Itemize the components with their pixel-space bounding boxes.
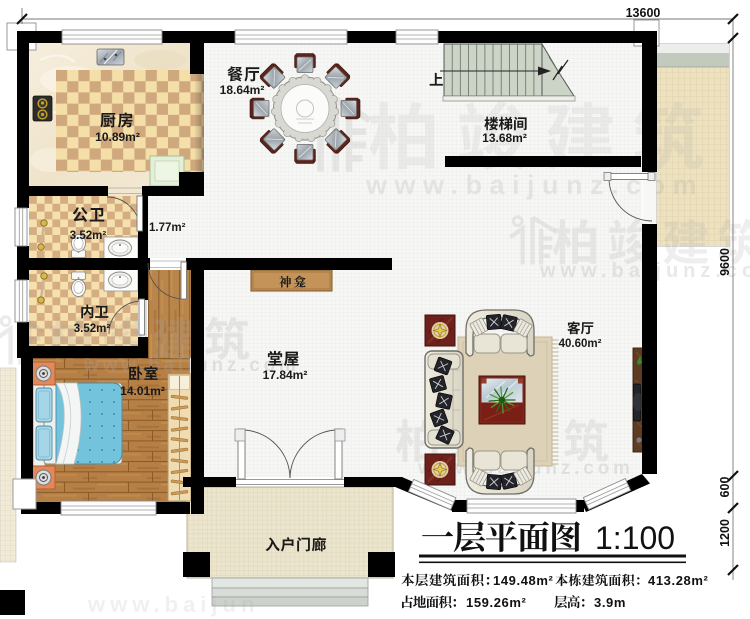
svg-text:600: 600 xyxy=(718,477,732,498)
svg-text:3.52m²: 3.52m² xyxy=(70,230,107,242)
svg-text:1:100: 1:100 xyxy=(595,520,675,556)
svg-text:9600: 9600 xyxy=(718,248,732,276)
svg-text:17.84m²: 17.84m² xyxy=(263,368,308,382)
svg-text:413.28m²: 413.28m² xyxy=(648,573,709,588)
svg-text:3.52m²: 3.52m² xyxy=(74,323,111,335)
svg-text:40.60m²: 40.60m² xyxy=(559,338,602,350)
svg-text:18.64m²: 18.64m² xyxy=(220,83,265,97)
svg-text:159.26m²: 159.26m² xyxy=(466,595,527,610)
svg-text:10.89m²: 10.89m² xyxy=(95,130,140,144)
svg-text:www.baijun: www.baijun xyxy=(87,592,259,617)
svg-text:1200: 1200 xyxy=(718,519,732,547)
svg-text:13.68m²: 13.68m² xyxy=(482,131,527,145)
svg-text:3.9m: 3.9m xyxy=(594,595,626,610)
svg-text:13600: 13600 xyxy=(626,6,661,20)
svg-text:14.01m²: 14.01m² xyxy=(120,384,165,398)
svg-text:149.48m²: 149.48m² xyxy=(493,573,554,588)
svg-text:1.77m²: 1.77m² xyxy=(149,222,186,234)
